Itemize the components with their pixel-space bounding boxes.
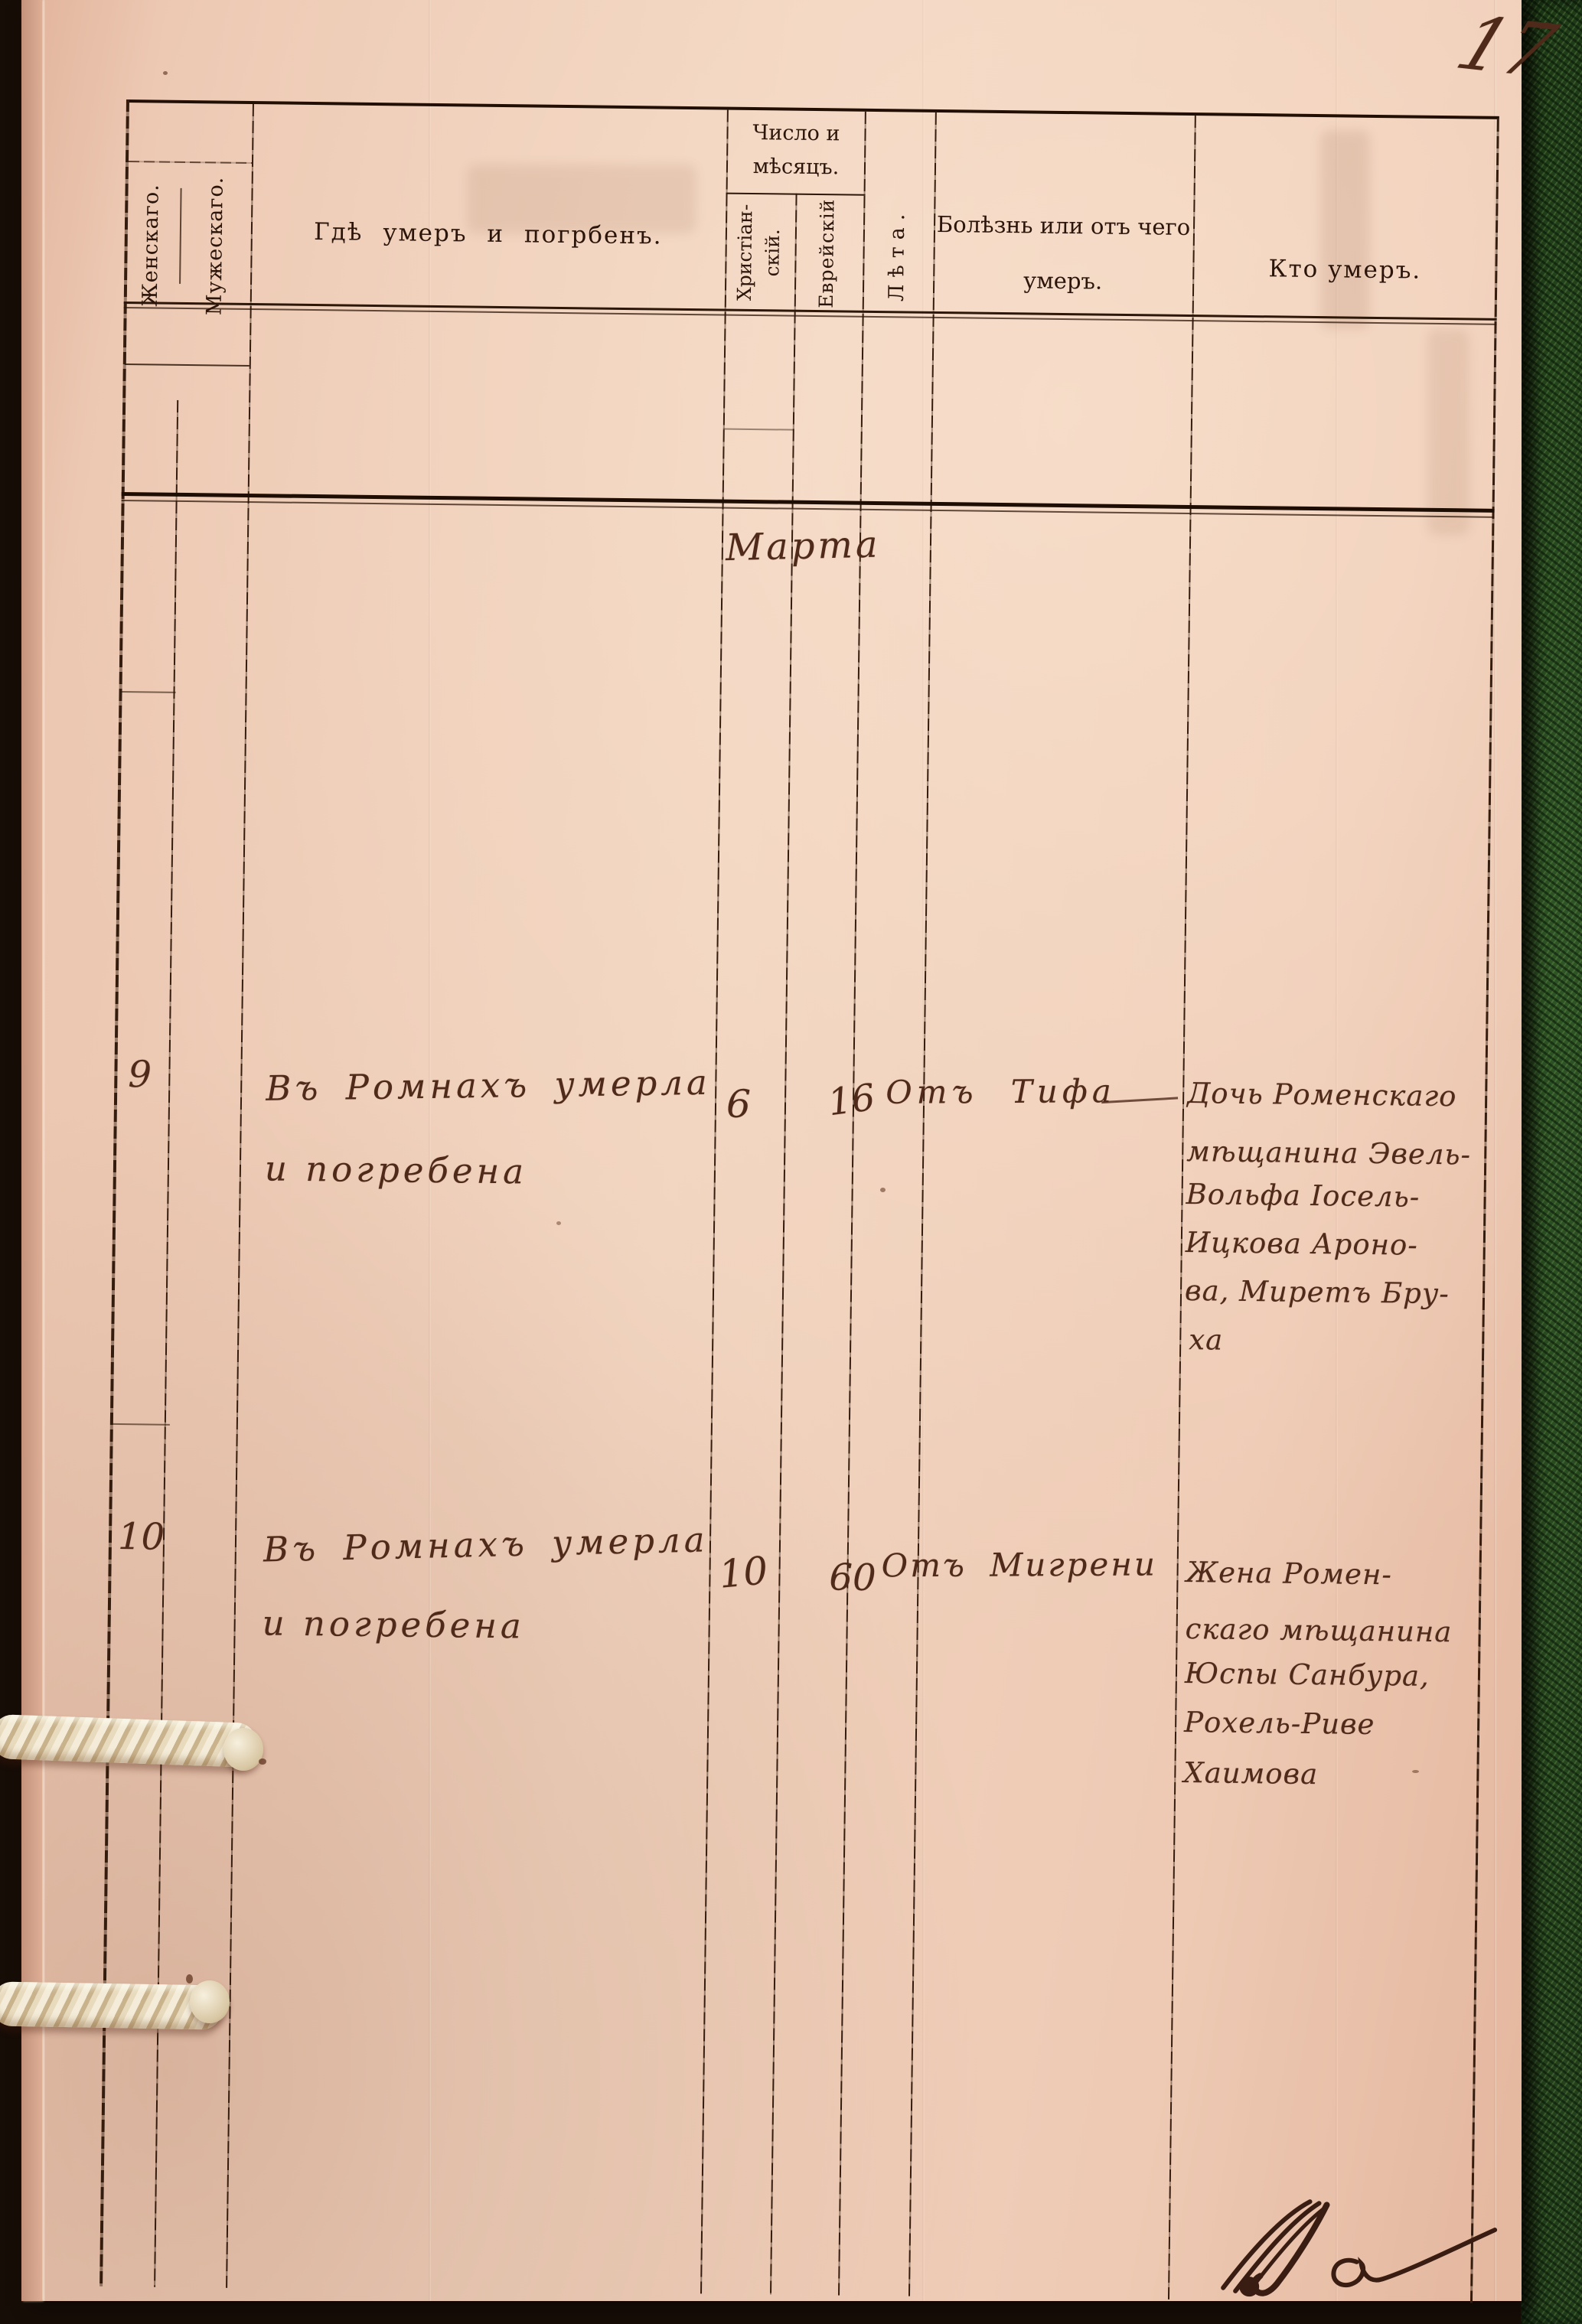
header-date-jewish: Еврейскій xyxy=(814,169,843,337)
binding-rope-end xyxy=(223,1728,263,1771)
col-divider-age-cause xyxy=(908,112,937,2296)
col-divider-jewish-age xyxy=(838,112,866,2296)
signature-flourish xyxy=(1209,2195,1509,2313)
entry-number: 10 xyxy=(118,1515,165,1559)
header-date-christian: Христіан- скій. xyxy=(731,192,791,314)
entry-where-line2: и погребена xyxy=(265,1148,528,1191)
entry-who-line: Вольфа Іосель- xyxy=(1186,1178,1420,1214)
header-cause-line2: умеръ. xyxy=(933,266,1192,295)
entry-age: 16 xyxy=(826,1076,878,1124)
header-female: Женскаго. xyxy=(138,149,166,341)
page-stack-edge xyxy=(21,0,42,2301)
header-age: Лѣта. xyxy=(884,178,912,331)
entry-who-line: ха xyxy=(1189,1323,1223,1357)
paper-crease xyxy=(42,0,44,2301)
row-line xyxy=(112,1423,170,1426)
ink-dot xyxy=(163,71,168,75)
binding-rope-end xyxy=(190,1980,230,2023)
entry-age: 60 xyxy=(829,1556,876,1599)
book-cover-edge xyxy=(1521,0,1582,2324)
col-divider-where-christian xyxy=(700,110,729,2294)
stitch-hole xyxy=(186,1974,193,1983)
entry-who-line: Юспы Санбура, xyxy=(1185,1657,1430,1693)
entry-who-line: Хаимова xyxy=(1183,1756,1318,1791)
entry-where-line1: Въ Ромнахъ умерла xyxy=(266,1062,711,1109)
row-line xyxy=(121,691,176,693)
month-label: Марта xyxy=(725,523,881,570)
entry-number: 9 xyxy=(128,1053,152,1096)
binding-rope xyxy=(0,1714,257,1768)
header-date-group-line1: Число и xyxy=(726,121,866,146)
header-who: Кто умеръ. xyxy=(1192,254,1497,285)
col-divider-male-where xyxy=(226,104,254,2288)
entry-who-line: мѣщанина Эвель- xyxy=(1186,1135,1471,1172)
header-date-group-line2: мѣсяцъ. xyxy=(726,155,866,180)
subrow-line-christian xyxy=(723,429,794,431)
stitch-hole xyxy=(259,1758,266,1765)
entry-where-line2: и погребена xyxy=(262,1602,525,1646)
entry-who-line: Жена Ромен- xyxy=(1186,1556,1392,1591)
subrow-line-left xyxy=(125,363,250,367)
entry-who-line: Дочь Роменскаго xyxy=(1187,1077,1457,1113)
header-where: Гдѣ умеръ и погрбенъ. xyxy=(251,217,726,251)
entry-who-line: скаго мѣщанина xyxy=(1185,1612,1452,1648)
header-cause-line1: Болѣзнь или отъ чего xyxy=(934,211,1193,240)
col-divider-female-male xyxy=(179,188,182,284)
entry-cause: Отъ Мигрени xyxy=(882,1545,1158,1584)
entry-date-christian: 10 xyxy=(717,1548,770,1597)
entry-date-christian: 6 xyxy=(726,1082,752,1126)
header-bottom-rule xyxy=(124,302,1497,321)
entry-cause: Отъ Тифа xyxy=(886,1072,1116,1111)
binding-rope xyxy=(0,1981,222,2029)
entry-who-line: Ицкова Ароно- xyxy=(1186,1226,1418,1262)
entry-who-line: ва, Миретъ Бру- xyxy=(1185,1274,1450,1310)
register-table: Женскаго. Мужескаго. Гдѣ умеръ и погрбен… xyxy=(99,99,1499,2306)
header-male: Мужескаго. xyxy=(202,150,230,341)
entry-who-line: Рохель-Риве xyxy=(1184,1706,1375,1741)
entry-where-line1: Въ Ромнахъ умерла xyxy=(263,1519,709,1569)
